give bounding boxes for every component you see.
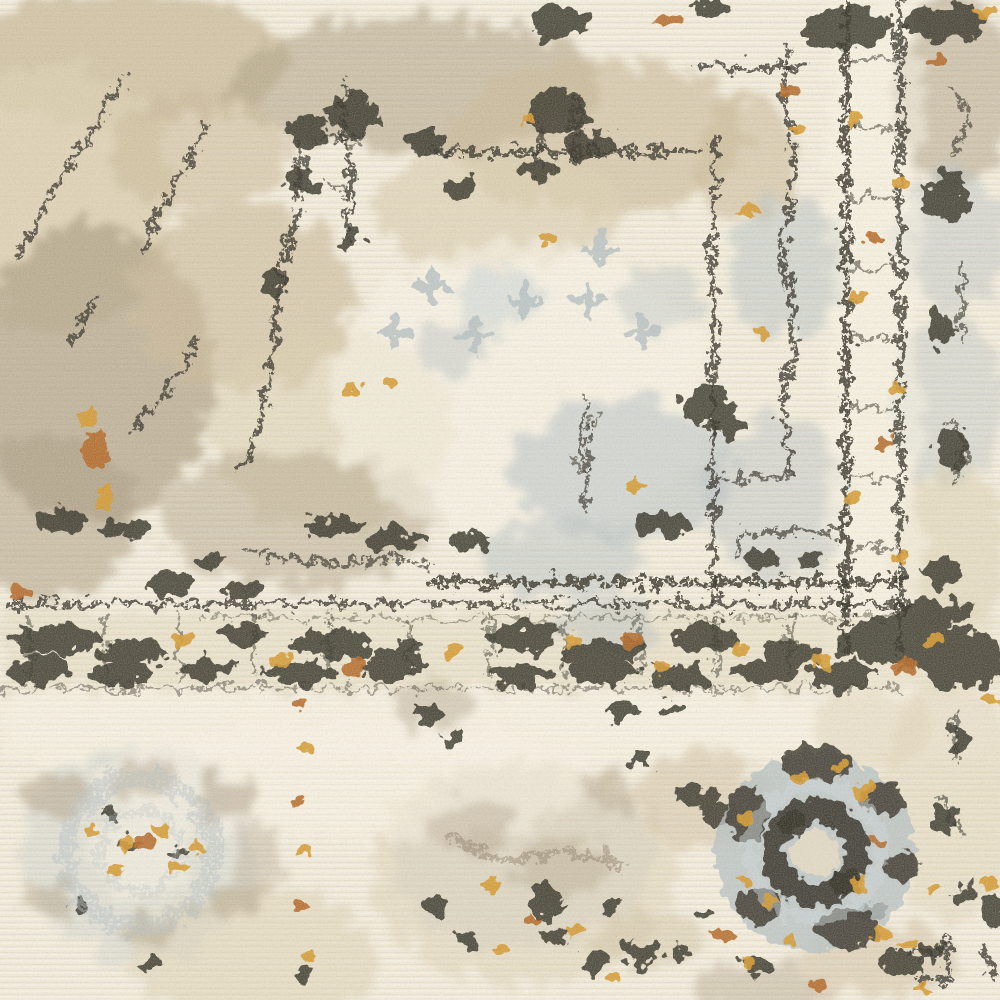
rug-photo: Distressed vintage-style area rug, close… bbox=[0, 0, 1000, 1000]
rug-photo-figure: Distressed vintage-style area rug, close… bbox=[0, 0, 1000, 1000]
pile-shadow-grain bbox=[0, 0, 1000, 1000]
